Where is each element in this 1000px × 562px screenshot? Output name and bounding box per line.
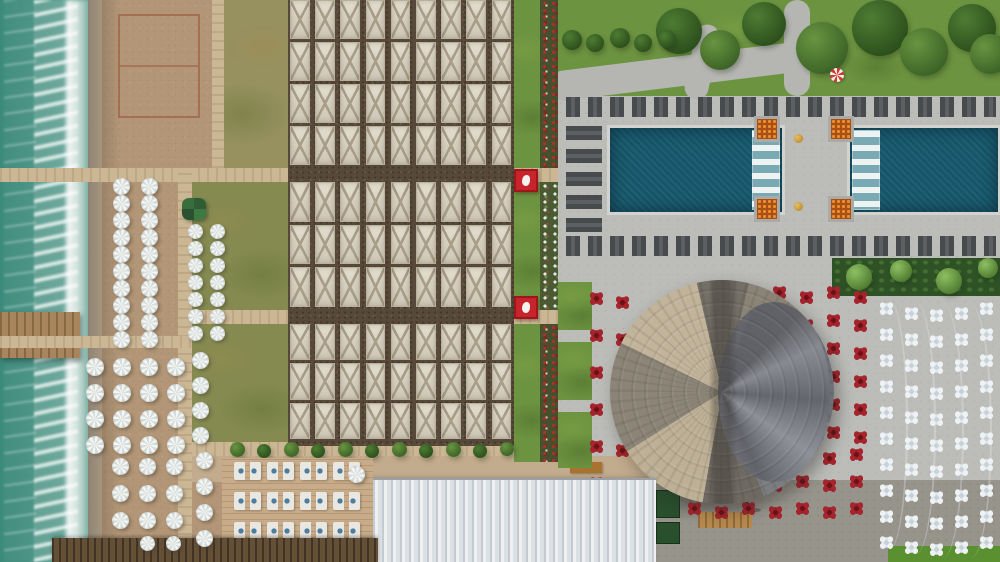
red-kiosk-lower [514,296,538,319]
beach-volleyball-court [118,14,200,118]
lawn-middle [192,182,292,310]
green-beach-tent [182,198,206,220]
walkway-vertical-1 [178,168,192,562]
flower-bed-red-top [540,0,558,168]
red-white-parasol [830,68,844,82]
beach-boardwalk [52,538,378,562]
lawn-strip-right-1 [514,0,540,168]
sea-foam-far [4,0,36,562]
resort-aerial-photo [0,0,1000,562]
closed-parasol-yellow [794,202,803,211]
terrace-step-arc [950,306,992,558]
lawn-strip-right-2 [514,182,540,310]
lawn-patch-2 [558,342,592,400]
cabana-ground [288,0,514,446]
green-dumpster [656,522,680,544]
flower-bed-red-lower [540,324,558,462]
thatched-round-roof [610,280,834,504]
person-shadow [748,508,761,512]
lawn-lower [192,324,292,442]
pier-walkway [0,336,192,348]
thatched-cone-section [718,302,830,482]
pool-right-lounge-shelf [852,130,880,210]
red-kiosk-upper [514,169,538,192]
lawn-strip-right-3 [514,324,540,462]
flower-bed-white-middle [540,182,558,310]
lawn-patch-3 [558,412,592,468]
lawn-patch-1 [558,282,592,330]
closed-parasol-yellow [794,134,803,143]
person [745,502,749,510]
wooden-crates [698,512,752,528]
white-metal-roof-building [373,478,656,562]
pool-left-lounge-shelf [752,130,780,210]
hedge-strip [832,258,1000,296]
walkway-vertical-2 [212,0,224,168]
wooden-pier [0,312,80,358]
grass-strip-top [224,0,288,168]
garden-path-vertical [784,0,810,96]
